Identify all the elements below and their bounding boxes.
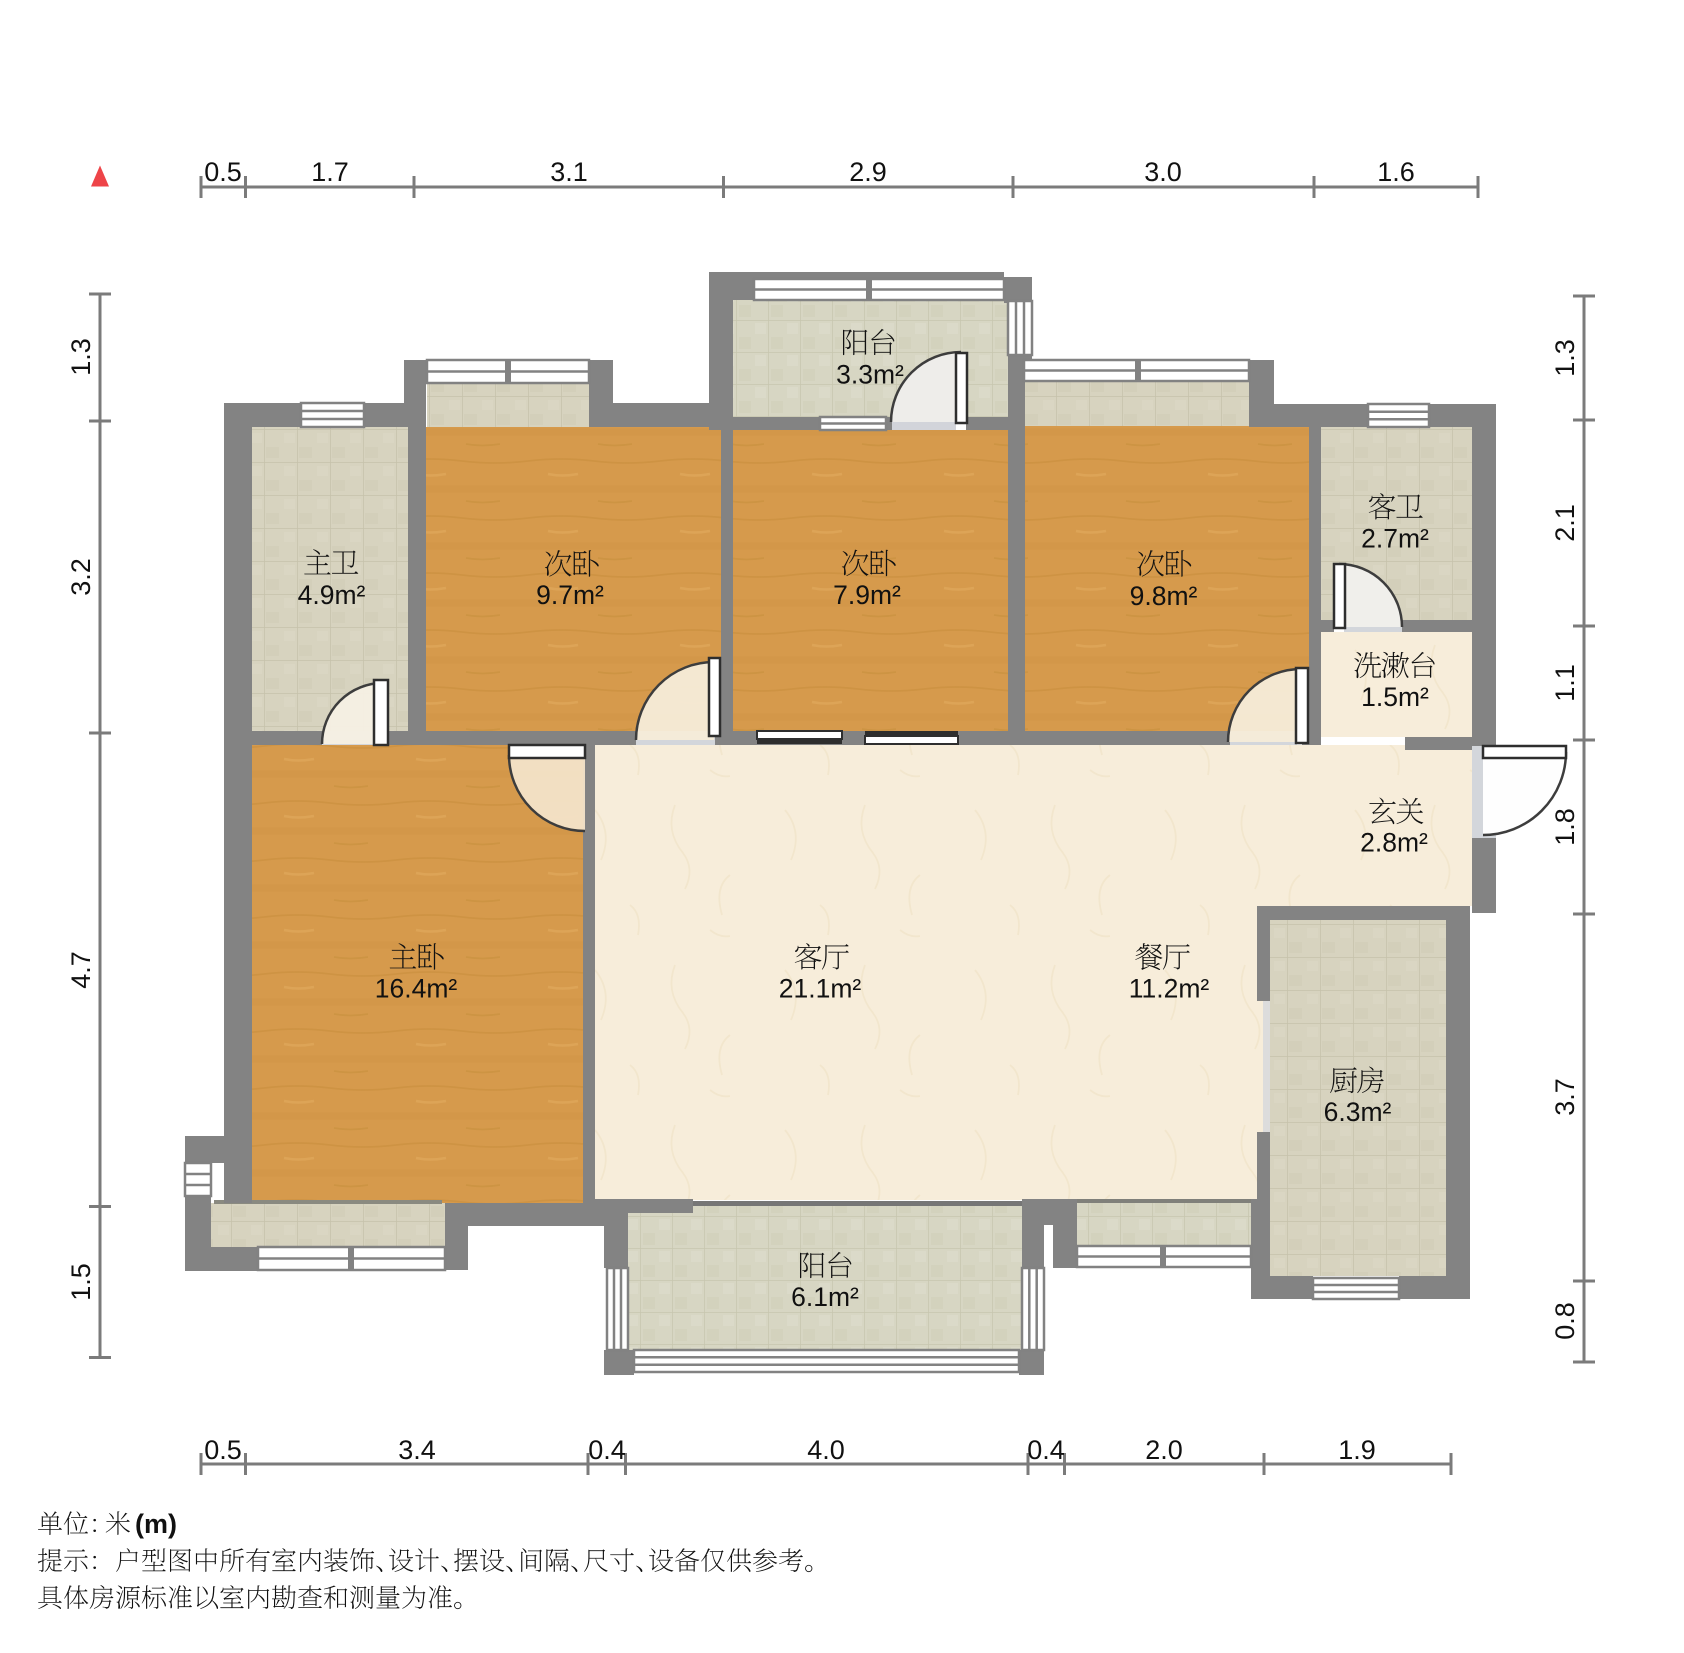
svg-text:2.7m²: 2.7m²	[1361, 524, 1429, 554]
svg-text:0.5: 0.5	[204, 157, 242, 187]
svg-text:(m): (m)	[135, 1509, 177, 1539]
svg-text:1.9: 1.9	[1338, 1435, 1376, 1465]
svg-text:21.1m²: 21.1m²	[779, 974, 862, 1004]
svg-text:6.1m²: 6.1m²	[791, 1282, 859, 1312]
svg-text:2.8m²: 2.8m²	[1360, 828, 1428, 858]
svg-text:3.0: 3.0	[1144, 157, 1182, 187]
svg-text:1.1: 1.1	[1550, 664, 1580, 702]
svg-text:3.2: 3.2	[66, 558, 96, 596]
svg-text:1.5: 1.5	[66, 1263, 96, 1301]
svg-text:6.3m²: 6.3m²	[1324, 1097, 1392, 1127]
svg-text:3.1: 3.1	[550, 157, 588, 187]
svg-text:9.7m²: 9.7m²	[536, 580, 604, 610]
svg-text:9.8m²: 9.8m²	[1130, 581, 1198, 611]
svg-text:2.9: 2.9	[849, 157, 887, 187]
svg-text:0.5: 0.5	[204, 1435, 242, 1465]
svg-text:16.4m²: 16.4m²	[375, 974, 458, 1004]
svg-text:2.0: 2.0	[1145, 1435, 1183, 1465]
svg-text:1.5m²: 1.5m²	[1361, 682, 1429, 712]
svg-text:0.4: 0.4	[588, 1435, 626, 1465]
svg-text:1.7: 1.7	[311, 157, 349, 187]
svg-text:0.4: 0.4	[1027, 1435, 1065, 1465]
svg-text:1.3: 1.3	[66, 338, 96, 376]
svg-text:0.8: 0.8	[1550, 1302, 1580, 1340]
svg-text:4.0: 4.0	[807, 1435, 845, 1465]
svg-text:1.8: 1.8	[1550, 808, 1580, 846]
svg-text:3.3m²: 3.3m²	[836, 360, 904, 390]
svg-text:3.7: 3.7	[1550, 1078, 1580, 1116]
svg-text:3.4: 3.4	[398, 1435, 436, 1465]
svg-text:2.1: 2.1	[1550, 504, 1580, 542]
svg-text:7.9m²: 7.9m²	[833, 580, 901, 610]
svg-text:11.2m²: 11.2m²	[1129, 974, 1210, 1004]
svg-text:4.7: 4.7	[66, 951, 96, 989]
svg-text:4.9m²: 4.9m²	[298, 580, 366, 610]
svg-text:1.6: 1.6	[1377, 157, 1415, 187]
svg-text:1.3: 1.3	[1550, 339, 1580, 377]
